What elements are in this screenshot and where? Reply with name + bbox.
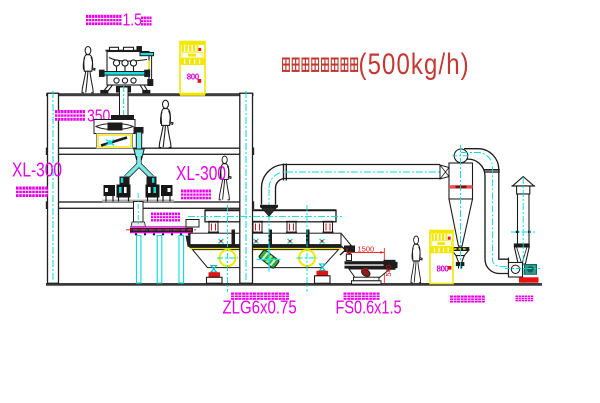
svg-text:XL-300: XL-300 <box>12 159 62 182</box>
svg-text:800: 800 <box>437 265 450 274</box>
svg-text:FS0.6x1.5: FS0.6x1.5 <box>336 298 402 318</box>
svg-text:540: 540 <box>386 265 393 277</box>
svg-text:(500kg/h): (500kg/h) <box>359 48 470 81</box>
svg-text:ZLG6x0.75: ZLG6x0.75 <box>223 297 297 318</box>
svg-text:XL-300: XL-300 <box>176 162 226 185</box>
svg-text:1.5: 1.5 <box>122 11 142 30</box>
